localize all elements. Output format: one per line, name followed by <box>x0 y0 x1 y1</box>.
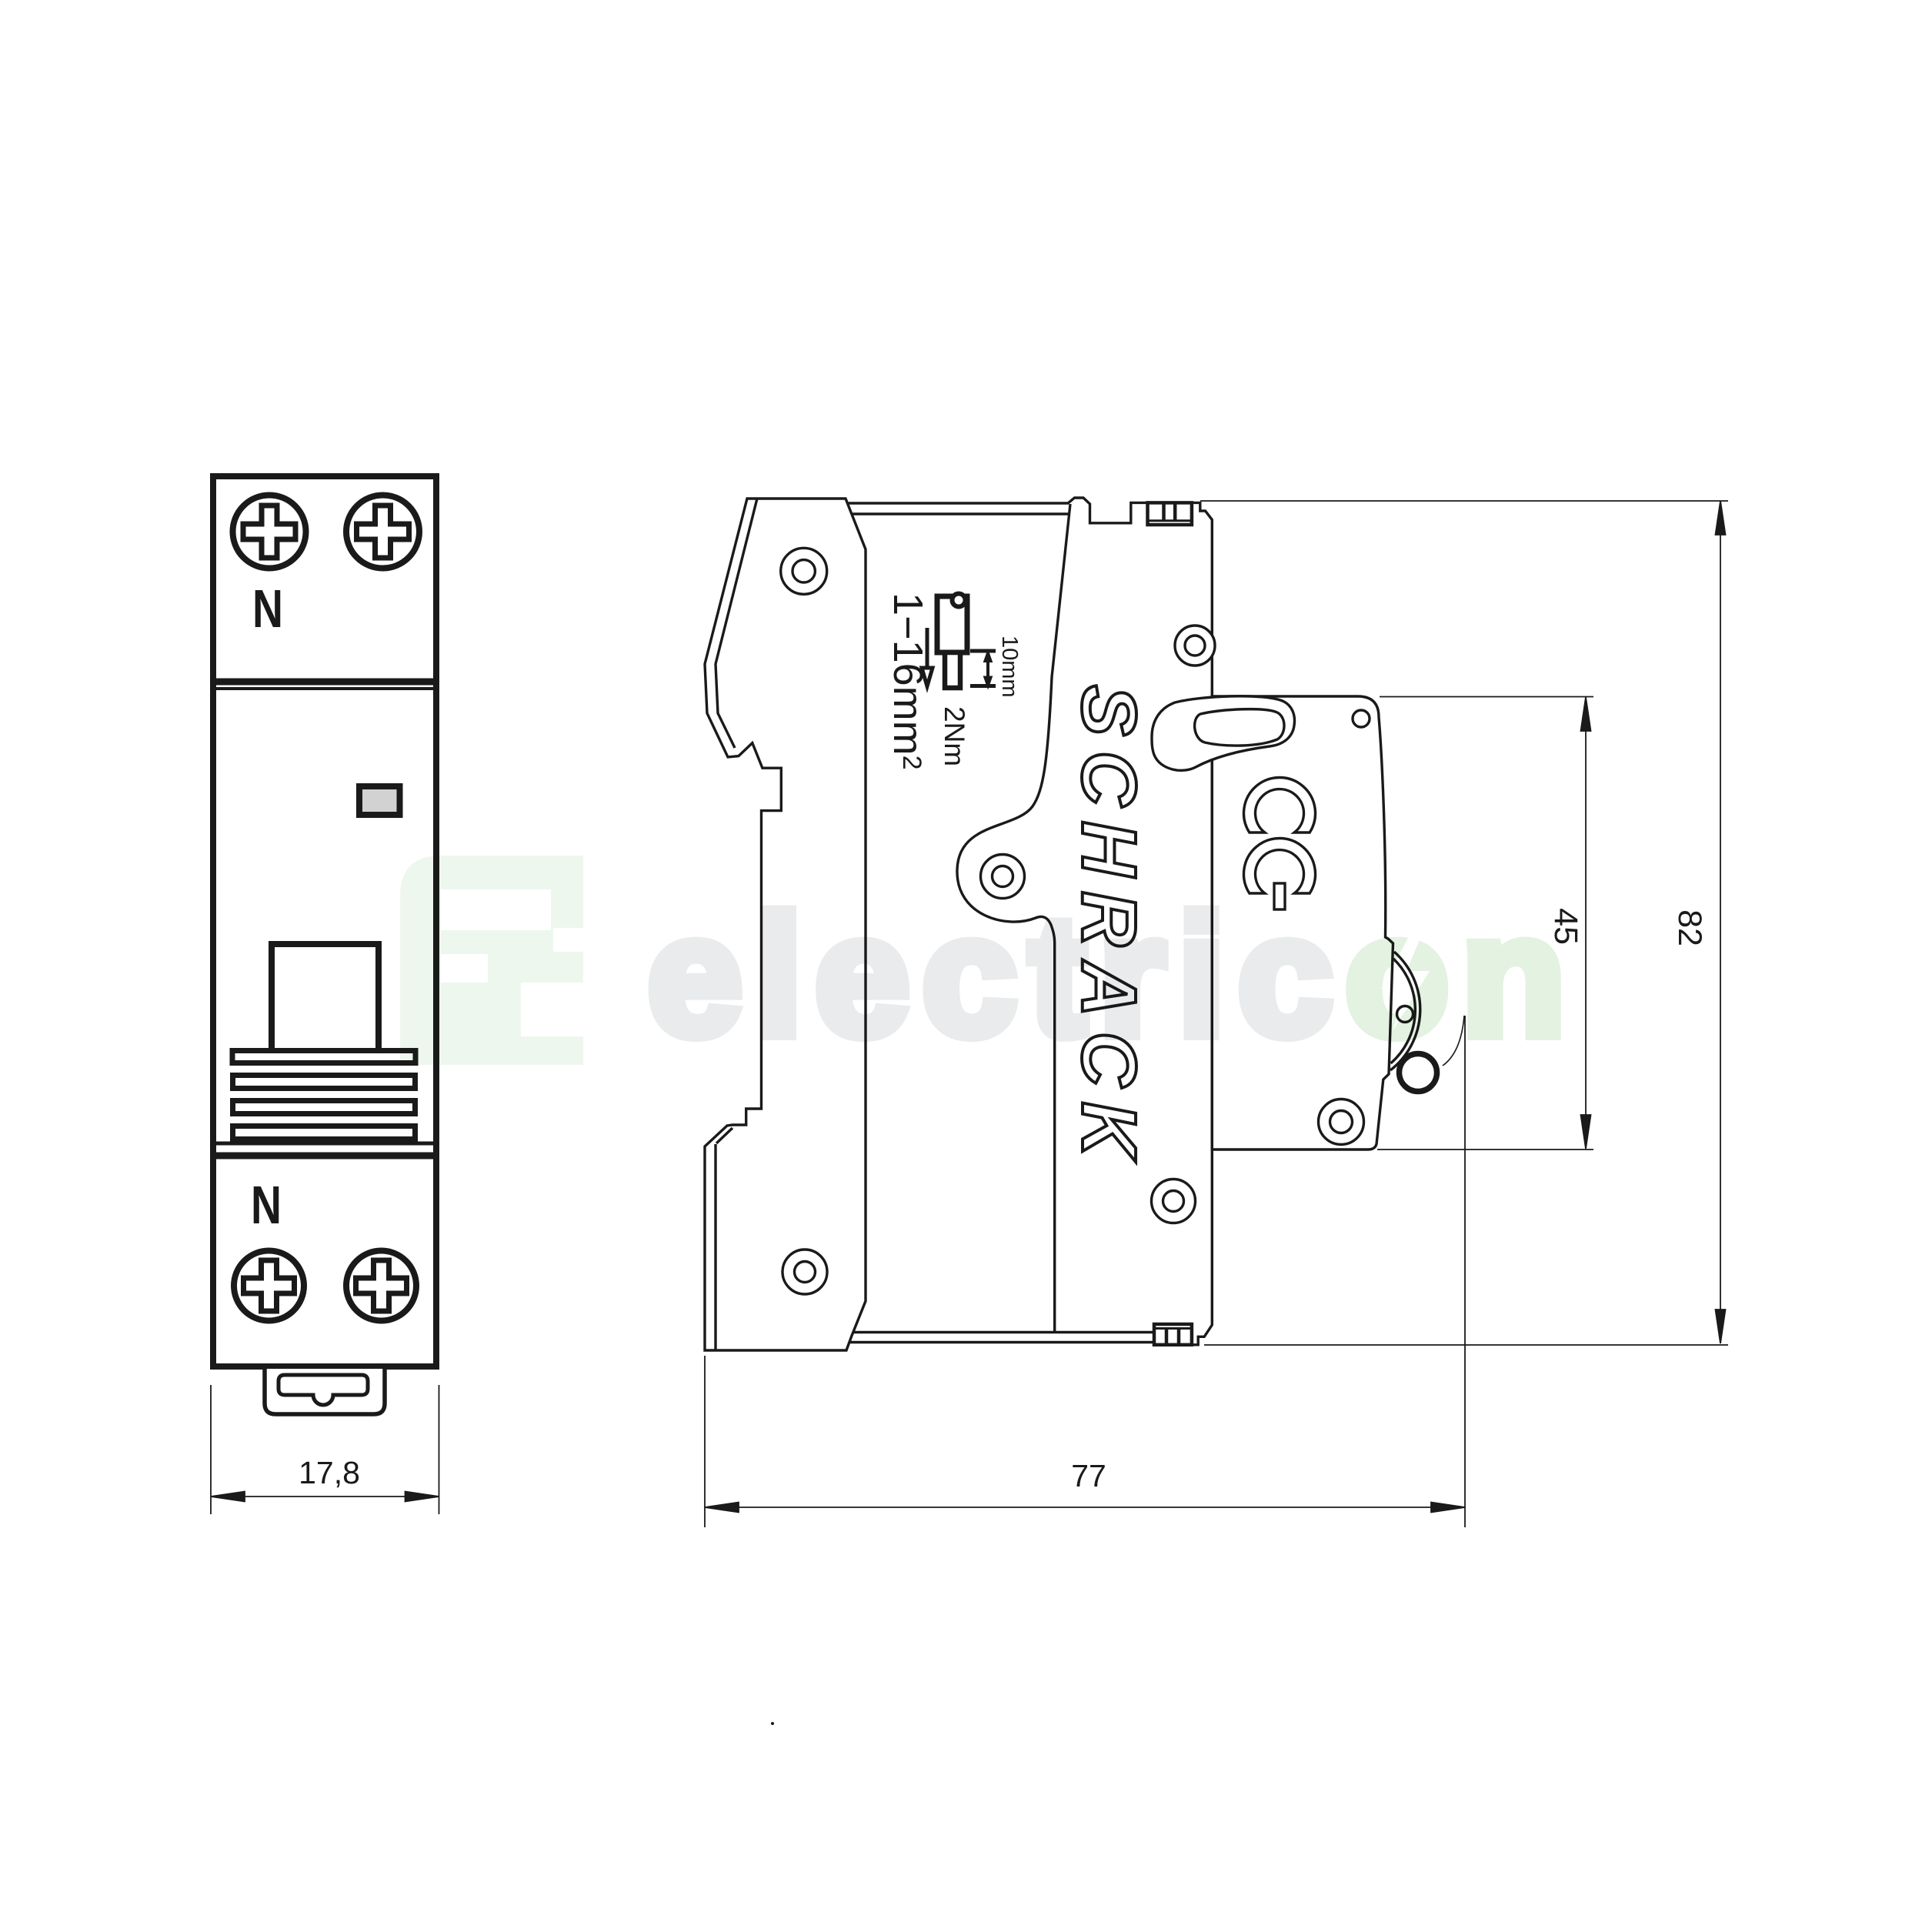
svg-text:electricon: electricon <box>648 881 1578 1070</box>
